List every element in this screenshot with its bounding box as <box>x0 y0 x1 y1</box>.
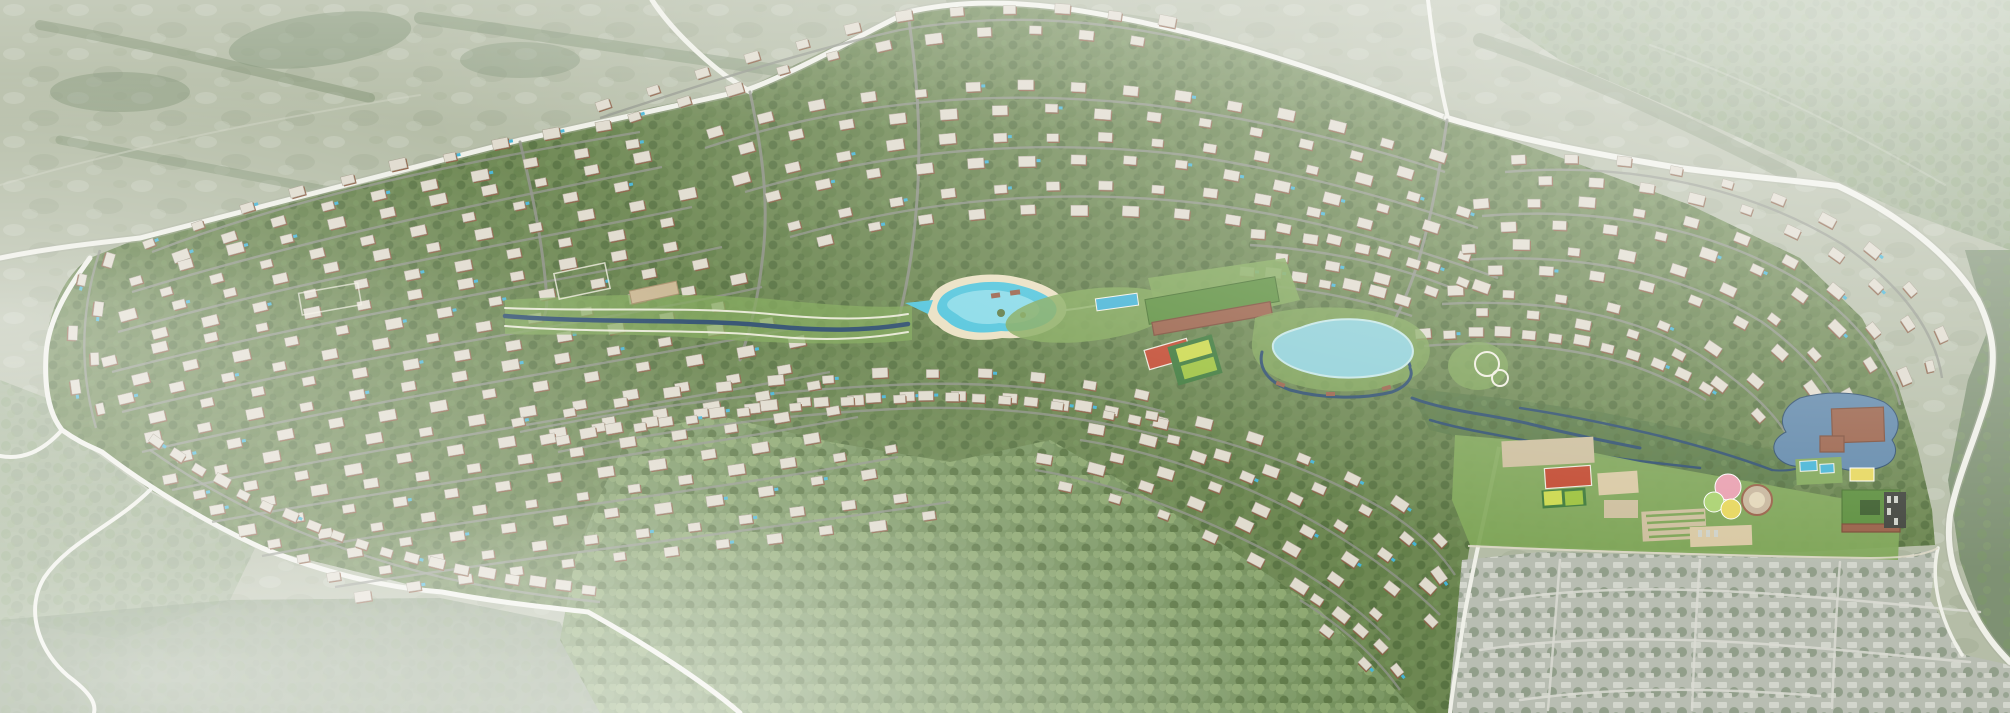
aerial-render <box>0 0 2010 713</box>
masterplan-svg <box>0 0 2010 713</box>
haze-layer <box>0 0 2010 713</box>
haze-top <box>0 0 2010 130</box>
